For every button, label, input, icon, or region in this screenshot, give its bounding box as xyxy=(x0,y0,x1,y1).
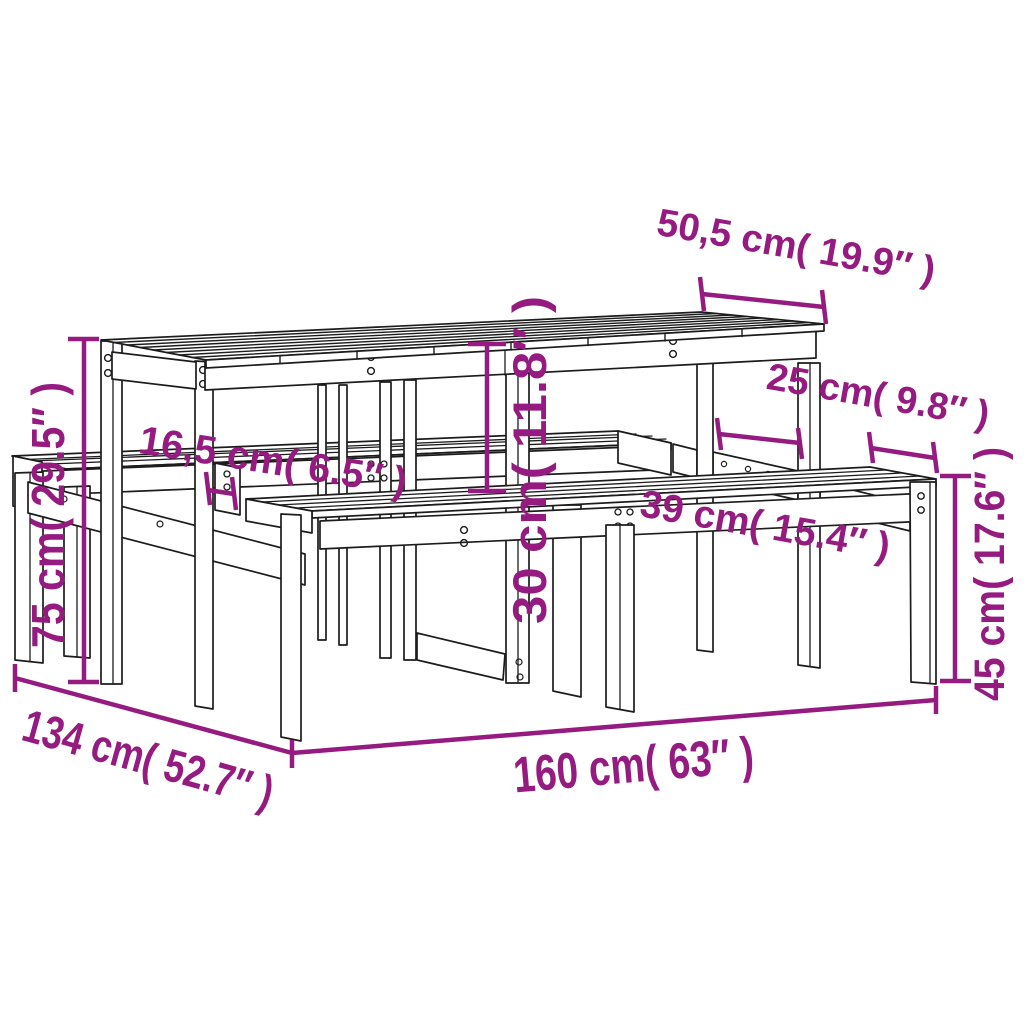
svg-text:160 cm( 63″ ): 160 cm( 63″ ) xyxy=(511,726,756,804)
svg-text:134 cm( 52.7″ ): 134 cm( 52.7″ ) xyxy=(17,699,280,818)
svg-text:75 cm( 29.5″ ): 75 cm( 29.5″ ) xyxy=(22,382,74,648)
svg-text:16,5 cm( 6.5″ ): 16,5 cm( 6.5″ ) xyxy=(136,418,410,504)
svg-text:30 cm( 11.8″ ): 30 cm( 11.8″ ) xyxy=(504,296,557,624)
svg-text:45 cm( 17.6″ ): 45 cm( 17.6″ ) xyxy=(966,447,1014,701)
svg-text:50,5 cm( 19.9″ ): 50,5 cm( 19.9″ ) xyxy=(654,201,939,292)
